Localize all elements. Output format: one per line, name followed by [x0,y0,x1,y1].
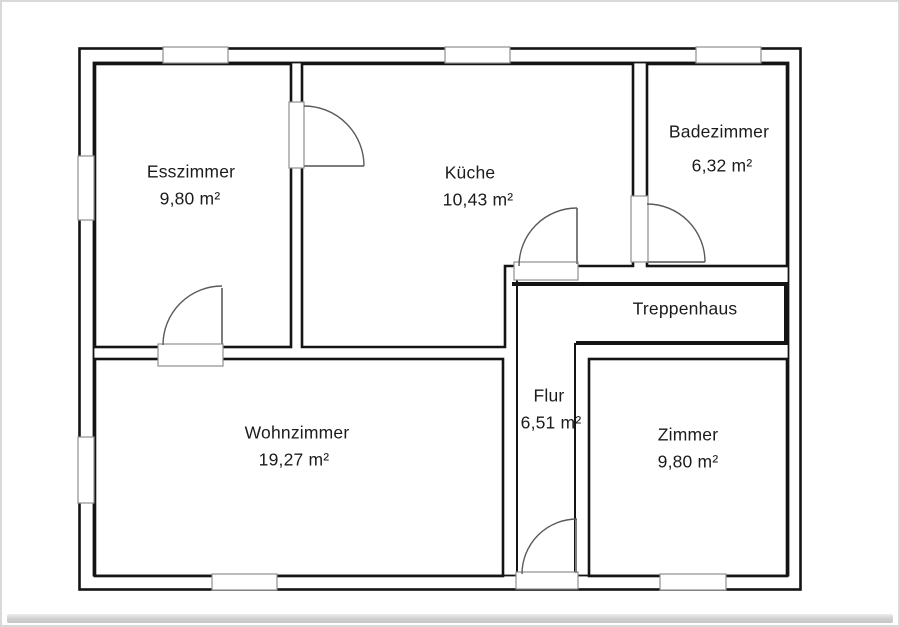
room-label-kueche: Küche [445,164,496,182]
room-label-badezimmer: Badezimmer [669,123,769,141]
door-opening-esszimmer-kueche [289,102,304,168]
floor-plan-page: Esszimmer 9,80 m² Küche 10,43 m² Badezim… [0,0,900,627]
door-opening-esszimmer-wohnzimmer [158,344,223,366]
floor-plan-drawing [0,0,900,627]
window-left-esszimmer [78,156,94,220]
page-bottom-shadow [7,614,893,623]
door-opening-flur-entry [516,572,578,589]
windows [78,47,761,590]
window-top-badezimmer [696,47,761,63]
room-area-kueche: 10,43 m² [443,191,514,209]
door-arc-esszimmer [163,286,222,345]
door-opening-kueche-flur [514,262,578,280]
door-arc-badezimmer [647,204,705,262]
room-area-badezimmer: 6,32 m² [692,157,753,175]
room-area-flur: 6,51 m² [521,414,582,432]
window-bottom-wohnzimmer [212,574,277,590]
room-label-flur: Flur [534,387,565,405]
room-label-esszimmer: Esszimmer [147,163,235,181]
door-arc-flur-entry [522,519,577,574]
window-top-kueche [445,47,510,63]
room-label-wohnzimmer: Wohnzimmer [245,424,350,442]
room-label-treppenhaus: Treppenhaus [633,300,738,318]
window-top-esszimmer [163,47,228,63]
window-left-wohnzimmer [78,437,94,503]
window-bottom-zimmer [660,574,726,590]
room-area-zimmer: 9,80 m² [658,453,719,471]
door-opening-badezimmer [631,196,648,262]
door-arc-kueche-flur [519,208,577,266]
room-area-wohnzimmer: 19,27 m² [259,451,330,469]
room-label-zimmer: Zimmer [658,426,719,444]
door-arc-kueche [304,106,364,166]
doors [163,106,705,574]
room-area-esszimmer: 9,80 m² [160,190,221,208]
